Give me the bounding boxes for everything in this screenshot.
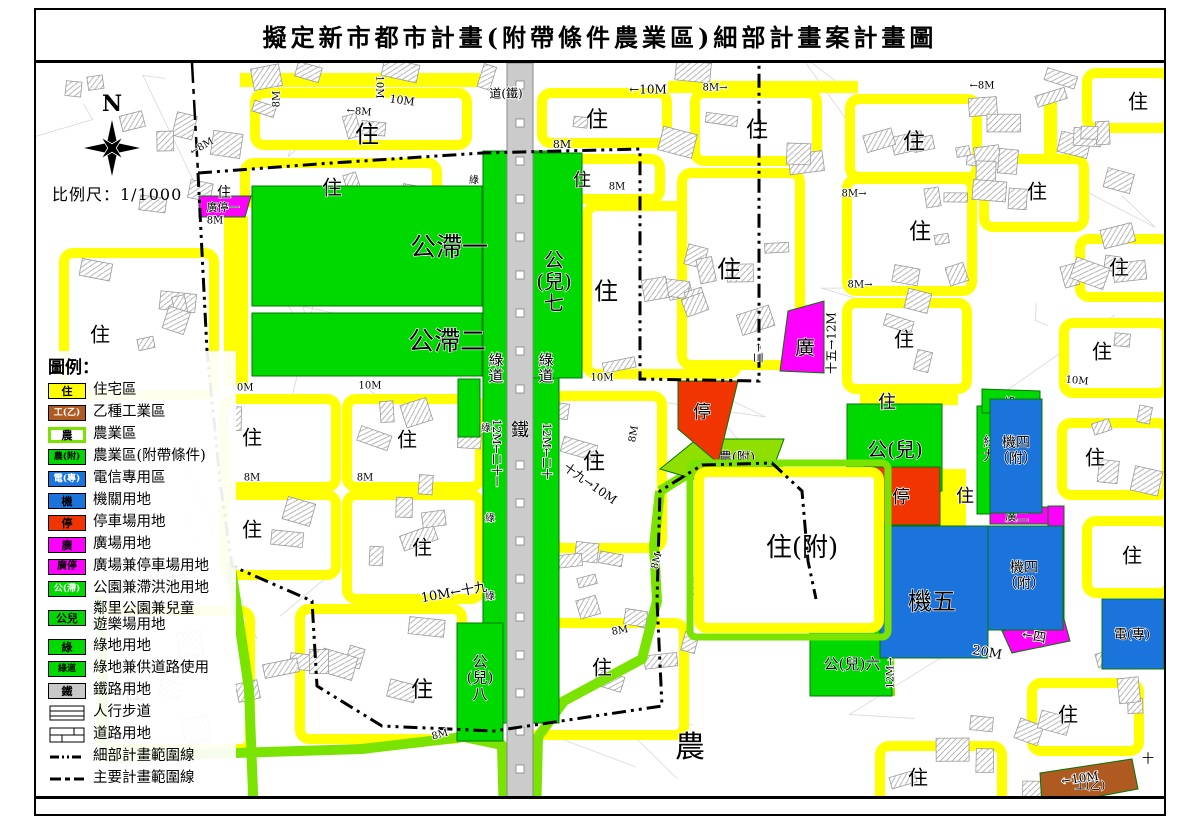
- legend-swatch: 機: [48, 493, 86, 509]
- road-label: ←8M: [970, 81, 995, 92]
- legend-label: 廣場兼停車場用地: [93, 559, 209, 575]
- road-label: 12M←二十一: [490, 419, 504, 486]
- cadastral-line: [1035, 303, 1048, 326]
- residential-label: 住: [1122, 544, 1142, 568]
- legend-title: 圖例：: [48, 353, 234, 378]
- road-label: 10M: [359, 381, 382, 392]
- residential-label: 住: [411, 678, 433, 703]
- road-label: 10M: [1065, 375, 1089, 388]
- legend-label: 公園兼滯洪池用地: [93, 581, 209, 597]
- agri-border-3: [464, 737, 504, 796]
- road-label: 8M: [553, 138, 571, 151]
- residential-label: 住: [242, 426, 262, 450]
- legend-label: 電信專用區: [93, 471, 166, 487]
- legend-item-11: 綠綠地用地: [48, 636, 234, 658]
- zone-label-park-children-6: 公(兒)六: [824, 655, 881, 673]
- road-label: 12M←二十: [540, 423, 554, 479]
- road-label: 8M: [609, 182, 626, 193]
- road-label: 8M→: [842, 189, 868, 200]
- title-band: 擬定新市都市計畫(附帶條件農業區)細部計畫案計畫圖: [36, 10, 1164, 63]
- legend-label: 細部計畫範圍線: [93, 749, 195, 765]
- building-footprint: [765, 242, 789, 253]
- residential-label: 住: [412, 536, 432, 560]
- residential-label: 住: [1109, 256, 1129, 280]
- residential-label: 住: [355, 121, 379, 149]
- building-footprint: [577, 574, 598, 588]
- map-text: 綠: [481, 423, 491, 435]
- railway-tick: [516, 575, 524, 583]
- legend-symbol-road-icon: [48, 727, 86, 743]
- building-footprint: [598, 551, 623, 567]
- railway-tick: [516, 119, 524, 127]
- zone-label-plaza: 廣: [795, 336, 815, 360]
- building-footprint: [271, 530, 304, 548]
- legend-item-16: 細部計畫範圍線: [48, 746, 234, 768]
- railway-tick: [516, 461, 524, 469]
- legend-item-10: 公兒鄰里公園兼兒童遊樂場用地: [48, 600, 234, 636]
- building-footprint: [976, 749, 994, 773]
- building-footprint: [786, 143, 811, 165]
- building-footprint: [310, 649, 329, 673]
- map-area: 公滯一公滯二公(兒)七公(兒)八公(兒)六公(兒)綠九綠農(附)停停廣停一廣廣二…: [36, 63, 1164, 799]
- residential-label: 住: [1085, 446, 1105, 470]
- building-footprint: [380, 401, 395, 423]
- building-footprint: [641, 276, 669, 301]
- residential-label: 住: [903, 130, 925, 155]
- building-footprint: [210, 130, 243, 158]
- building-footprint: [1008, 188, 1028, 210]
- legend-item-2: 農農業區: [48, 424, 234, 446]
- zone-label-parking-west: 停: [693, 402, 711, 423]
- building-footprint: [1044, 68, 1078, 89]
- legend-item-9: 公(滯)公園兼滯洪池用地: [48, 578, 234, 600]
- railway-label: 鐵: [511, 420, 529, 441]
- road-label: 三→: [752, 343, 765, 363]
- building-footprint: [263, 658, 300, 678]
- residential-label: 住: [242, 518, 262, 542]
- residential-label: 住: [1092, 340, 1112, 364]
- legend-item-6: 停停車場用地: [48, 512, 234, 534]
- compass-north-label: N: [82, 91, 142, 117]
- compass: N: [82, 91, 142, 183]
- road-label: 8M: [272, 91, 283, 108]
- residential-block: [1087, 73, 1164, 128]
- building-footprint: [1137, 405, 1153, 424]
- legend-swatch: 綠: [48, 639, 86, 655]
- legend-label: 鐵路用地: [93, 683, 151, 699]
- road-label: 8M: [357, 473, 374, 484]
- compass-rose-icon: [84, 117, 140, 179]
- building-footprint: [408, 617, 445, 638]
- road-label: 8M: [207, 216, 224, 227]
- residential-label: 住: [592, 656, 612, 680]
- legend-label: 鄰里公園兼兒童遊樂場用地: [93, 602, 195, 634]
- legend-swatch: 廣停: [48, 559, 86, 575]
- legend-items: 住住宅區工(乙)乙種工業區農農業區農(附)農業區(附帶條件)電(專)電信專用區機…: [48, 380, 234, 790]
- residential-label: 住: [1027, 180, 1047, 204]
- map-text: 綠道: [488, 351, 503, 385]
- zone-label-res-cond-inner: 住(附): [766, 533, 838, 563]
- legend-label: 廣場用地: [93, 537, 151, 553]
- legend-label: 農業區: [93, 427, 137, 443]
- building-footprint: [396, 497, 413, 517]
- road-label: 10M: [374, 76, 385, 99]
- legend: 圖例： 住住宅區工(乙)乙種工業區農農業區農(附)農業區(附帶條件)電(專)電信…: [46, 351, 236, 792]
- residential-label: 住: [586, 108, 608, 133]
- legend-item-15: 道路用地: [48, 724, 234, 746]
- zone-label-plaza-parking-1: 廣停一: [207, 200, 240, 214]
- residential-label: 住: [894, 328, 914, 352]
- map-text: 綠道: [538, 351, 553, 385]
- legend-label: 綠地用地: [93, 639, 151, 655]
- railway-tick: [516, 309, 524, 317]
- residential-label: 住: [397, 428, 417, 452]
- legend-label: 農業區(附帶條件): [93, 449, 206, 465]
- legend-swatch: 停: [48, 515, 86, 531]
- legend-label: 住宅區: [93, 383, 137, 399]
- legend-label: 主要計畫範圍線: [93, 771, 195, 787]
- building-footprint: [1117, 677, 1141, 704]
- zone-label-telecom: 電(專): [1114, 628, 1150, 643]
- residential-label: 住: [717, 256, 741, 284]
- legend-symbol-line-detail-icon: [48, 749, 86, 765]
- residential-label: 住: [909, 220, 931, 245]
- residential-label: 住: [322, 176, 342, 200]
- building-footprint: [157, 131, 174, 151]
- zone-label-park-detention-1: 公滯一: [410, 233, 488, 263]
- railway-tick: [516, 613, 524, 621]
- building-footprint: [968, 97, 997, 117]
- legend-item-13: 鐵鐵路用地: [48, 680, 234, 702]
- building-footprint: [936, 738, 969, 761]
- building-footprint: [172, 112, 198, 140]
- legend-label: 機關用地: [93, 493, 151, 509]
- railway-tick: [516, 233, 524, 241]
- map-text: 住: [878, 392, 896, 413]
- legend-swatch: 農: [48, 427, 86, 443]
- building-footprint: [87, 75, 104, 90]
- legend-symbol-walkway-icon: [48, 705, 86, 721]
- page-title: 擬定新市都市計畫(附帶條件農業區)細部計畫案計畫圖: [263, 18, 938, 53]
- road-label: 8M: [244, 473, 261, 484]
- legend-swatch: 公兒: [48, 610, 86, 626]
- legend-swatch: 工(乙): [48, 405, 86, 421]
- legend-swatch: 鐵: [48, 683, 86, 699]
- legend-swatch: 公(滯): [48, 581, 86, 597]
- legend-label: 人行步道: [93, 705, 151, 721]
- residential-label: 住: [1128, 90, 1148, 114]
- legend-label: 綠地兼供道路使用: [93, 661, 209, 677]
- plan-sheet: 擬定新市都市計畫(附帶條件農業區)細部計畫案計畫圖 公滯一公滯二公(兒)七公(兒…: [34, 8, 1166, 816]
- building-footprint: [1114, 333, 1130, 347]
- building-footprint: [421, 510, 446, 528]
- railway-tick: [516, 195, 524, 203]
- legend-swatch: 住: [48, 383, 86, 399]
- legend-item-5: 機機關用地: [48, 490, 234, 512]
- legend-item-7: 廣廣場用地: [48, 534, 234, 556]
- railway-tick: [516, 157, 524, 165]
- building-footprint: [65, 81, 82, 97]
- building-footprint: [970, 715, 994, 731]
- building-footprint: [972, 179, 1007, 201]
- legend-item-12: 綠道綠地兼供道路使用: [48, 658, 234, 680]
- building-footprint: [934, 233, 949, 245]
- building-footprint: [924, 187, 941, 208]
- legend-swatch: 農(附): [48, 449, 86, 465]
- railway-tick: [516, 651, 524, 659]
- residential-label: 住: [594, 278, 618, 306]
- building-footprint: [1081, 126, 1098, 139]
- legend-swatch: 電(專): [48, 471, 86, 487]
- legend-item-1: 工(乙)乙種工業區: [48, 402, 234, 424]
- building-footprint: [369, 546, 383, 566]
- railway-tick: [516, 765, 524, 773]
- legend-item-4: 電(專)電信專用區: [48, 468, 234, 490]
- road-label: 道(鐵): [489, 86, 522, 101]
- road-label: 十: [1142, 752, 1154, 766]
- residential-label: 住: [908, 766, 928, 790]
- road-label: 十五→12M: [825, 312, 839, 374]
- road-label: 20M: [971, 643, 1003, 663]
- map-text: 住: [956, 486, 974, 507]
- railway-tick: [516, 499, 524, 507]
- legend-swatch: 綠道: [48, 661, 86, 677]
- legend-label: 停車場用地: [93, 515, 166, 531]
- legend-item-0: 住住宅區: [48, 380, 234, 402]
- legend-label: 乙種工業區: [93, 405, 166, 421]
- residential-label: 住: [90, 323, 110, 347]
- railway-tick: [516, 347, 524, 355]
- legend-item-17: 主要計畫範圍線: [48, 768, 234, 790]
- road-label: 10M: [591, 373, 614, 384]
- railway-tick: [516, 385, 524, 393]
- railway-tick: [516, 689, 524, 697]
- building-footprint: [675, 63, 712, 83]
- building-footprint: [997, 148, 1018, 174]
- building-footprint: [987, 114, 1021, 132]
- map-text: 住: [217, 185, 231, 201]
- building-footprint: [956, 146, 971, 158]
- residential-label: 住: [573, 170, 591, 191]
- road-label: 12M→: [886, 657, 897, 689]
- residential-label: 住: [746, 118, 768, 143]
- legend-symbol-line-main-icon: [48, 771, 86, 787]
- zone-label-park-detention-2: 公滯二: [408, 327, 486, 357]
- zone-label-gov-5: 機五: [908, 588, 956, 616]
- road-label: 8M→: [848, 280, 874, 291]
- map-text: 農: [675, 730, 705, 765]
- railway-tick: [516, 537, 524, 545]
- building-footprint: [944, 193, 968, 202]
- legend-swatch: 廣: [48, 537, 86, 553]
- residential-label: 住: [1058, 703, 1078, 727]
- railway-tick: [516, 271, 524, 279]
- zone-green-sliver-west: [458, 379, 480, 437]
- zone-label-park-children-east: 公(兒): [867, 438, 923, 462]
- road-label: 8M→: [703, 83, 729, 94]
- legend-item-14: 人行步道: [48, 702, 234, 724]
- legend-item-8: 廣停廣場兼停車場用地: [48, 556, 234, 578]
- legend-item-3: 農(附)農業區(附帶條件): [48, 446, 234, 468]
- building-footprint: [1103, 168, 1134, 194]
- road-label: ←8M: [346, 105, 372, 118]
- scale-label: 比例尺：1/1000: [52, 181, 182, 205]
- building-footprint: [576, 595, 601, 619]
- map-text: 綠: [469, 175, 479, 187]
- road-label: ←10M: [629, 83, 667, 97]
- map-text: 綠: [485, 513, 495, 525]
- zone-label-parking-east: 停: [892, 487, 910, 508]
- legend-label: 道路用地: [93, 727, 151, 743]
- building-footprint: [418, 475, 433, 495]
